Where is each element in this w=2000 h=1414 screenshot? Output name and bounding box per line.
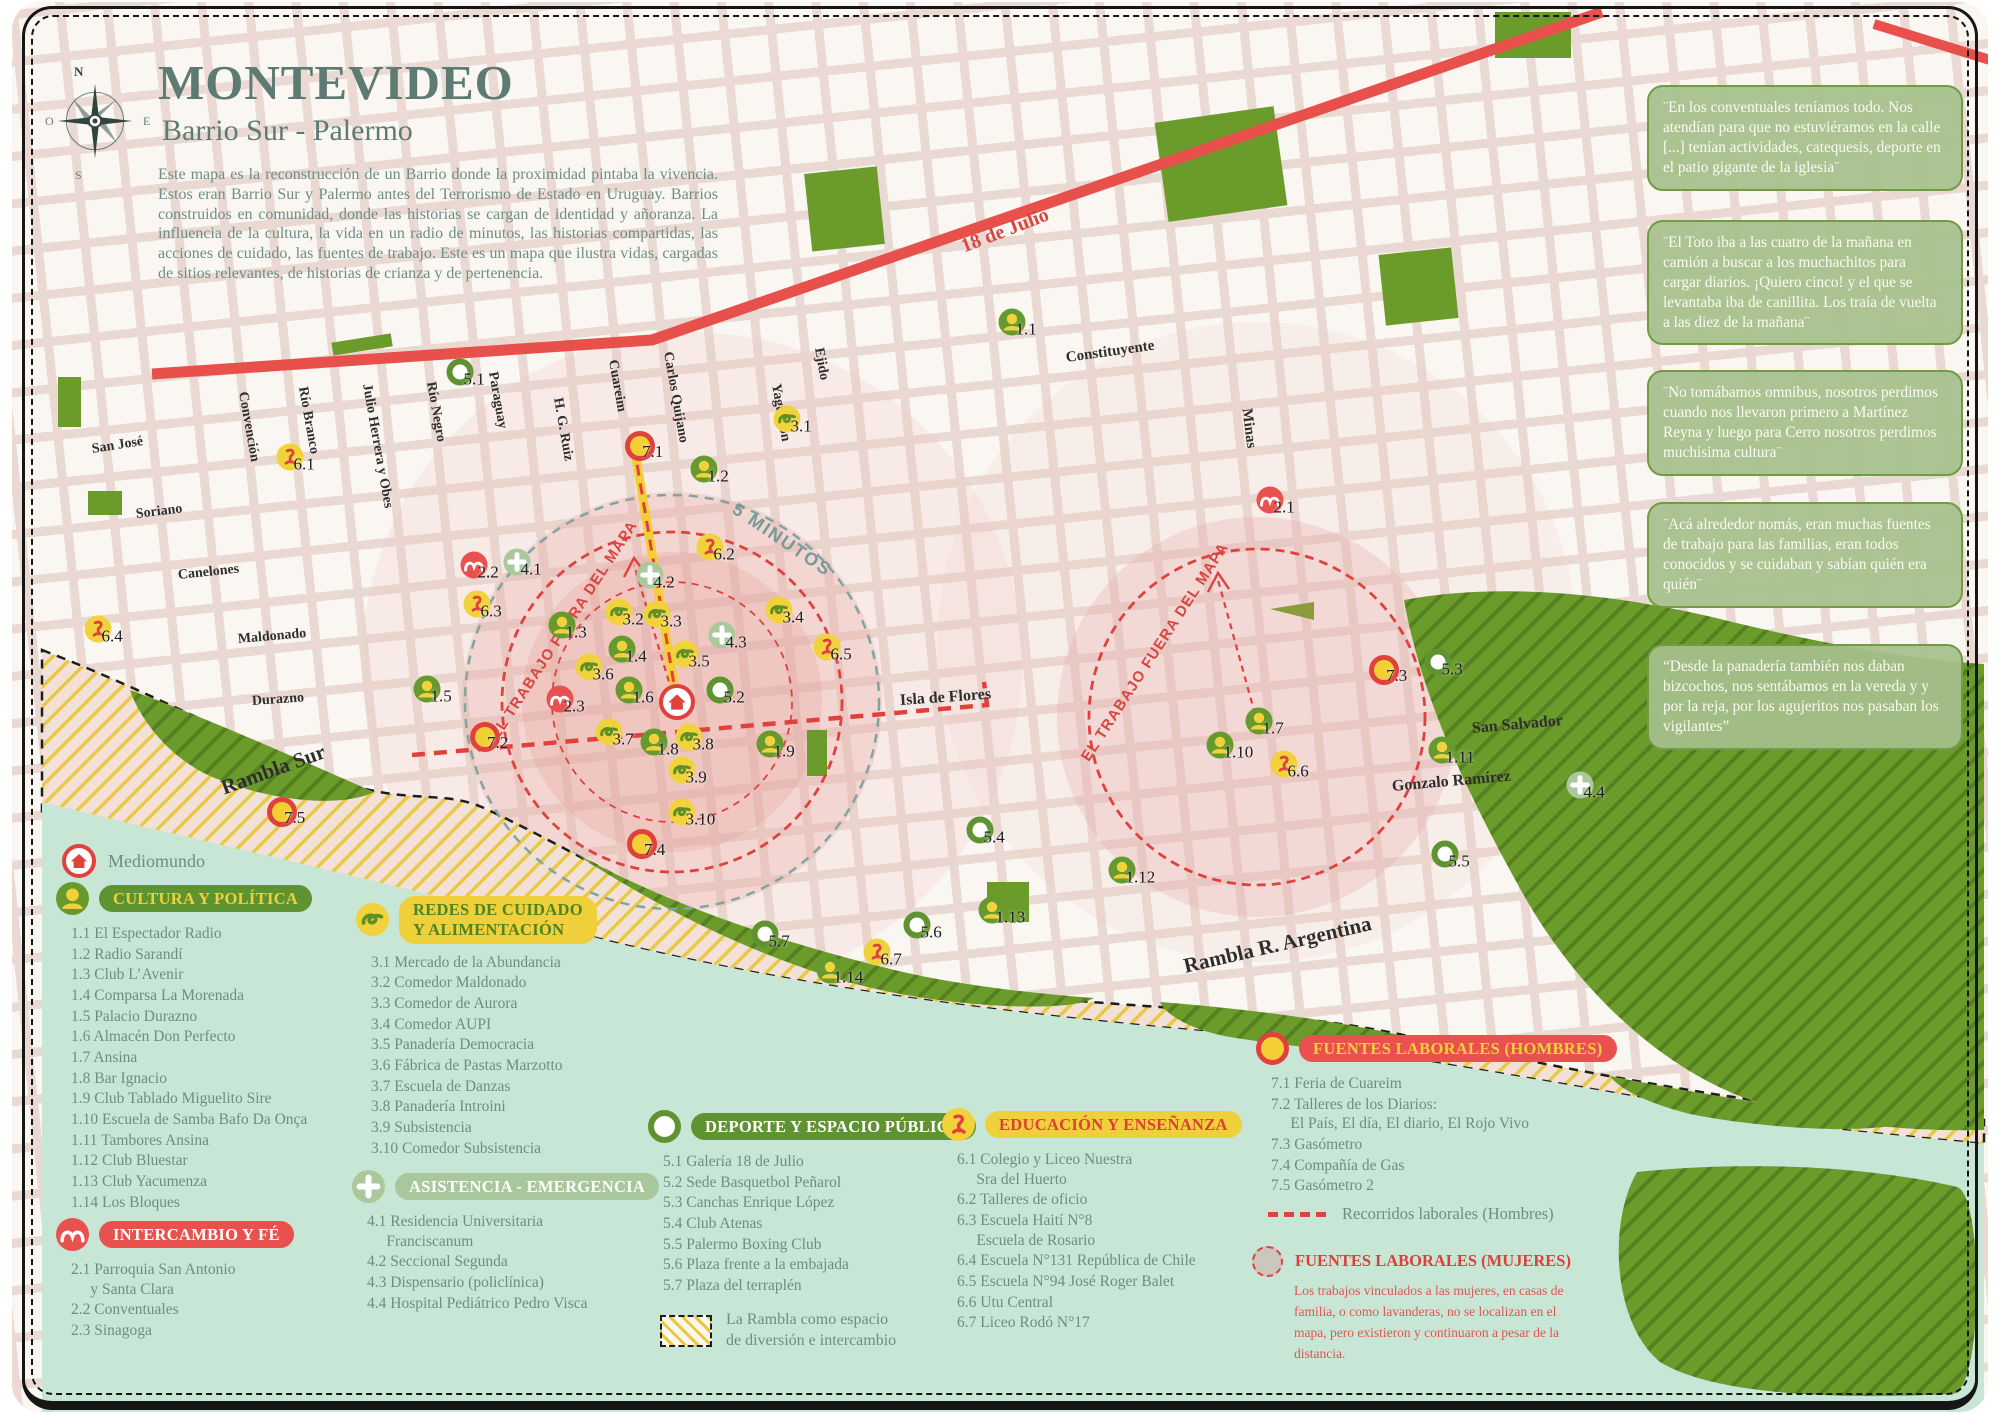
marker-label: 5.3: [1442, 660, 1463, 680]
marker-label: 3.10: [686, 810, 716, 830]
legend-item: 1.11 Tambores Ansina: [71, 1131, 312, 1151]
marker-7.1[interactable]: 7.1: [625, 431, 655, 461]
marker-3.10[interactable]: 3.10: [669, 799, 696, 826]
legend-item: 3.4 Comedor AUPI: [371, 1015, 597, 1035]
marker-7.2[interactable]: 7.2: [470, 722, 500, 752]
hombres-icon: [1256, 1032, 1289, 1065]
marker-label: 3.2: [623, 610, 644, 630]
legend-item: 4.4 Hospital Pediátrico Pedro Visca: [367, 1294, 659, 1314]
legend-item: 6.7 Liceo Rodó N°17: [957, 1313, 1242, 1333]
marker-label: 1.4: [626, 647, 647, 667]
marker-5.5[interactable]: 5.5: [1432, 841, 1459, 868]
red-dashed-line-swatch: [1268, 1212, 1326, 1217]
legend-badge-hombres: FUENTES LABORALES (HOMBRES): [1299, 1035, 1617, 1063]
compass-rose-icon: [52, 78, 138, 164]
marker-label: 1.13: [996, 908, 1026, 928]
marker-label: 4.2: [654, 573, 675, 593]
marker-6.7[interactable]: 6.7: [864, 939, 891, 966]
legend-item: 5.6 Plaza frente a la embajada: [663, 1255, 976, 1275]
legend-item: 6.2 Talleres de oficio: [957, 1190, 1242, 1210]
marker-label: 2.2: [478, 563, 499, 583]
marker-label: 5.2: [724, 688, 745, 708]
marker-7.4[interactable]: 7.4: [627, 829, 657, 859]
legend-item: 7.4 Compañía de Gas: [1271, 1156, 1617, 1176]
legend-item: 3.2 Comedor Maldonado: [371, 973, 597, 993]
asistencia-icon: [352, 1170, 385, 1203]
marker-label: 4.4: [1584, 783, 1605, 803]
legend-item: 5.2 Sede Basquetbol Peñarol: [663, 1173, 976, 1193]
quote-bubble-4: ¨Acá alrededor nomás, eran muchas fuente…: [1647, 502, 1963, 608]
compass-o: O: [45, 114, 54, 129]
marker-5.2[interactable]: 5.2: [707, 677, 734, 704]
marker-3.7[interactable]: 3.7: [596, 719, 623, 746]
mujeres-circle-icon: [1252, 1246, 1283, 1277]
legend-item: 1.7 Ansina: [71, 1048, 312, 1068]
marker-label: 1.11: [1446, 748, 1475, 768]
legend-badge-cultura: CULTURA Y POLÍTICA: [99, 885, 312, 913]
marker-1.2[interactable]: 1.2: [691, 456, 718, 483]
legend-item: 6.5 Escuela N°94 José Roger Balet: [957, 1272, 1242, 1292]
legend-item: 4.2 Seccional Segunda: [367, 1252, 659, 1272]
marker-label: 4.1: [521, 560, 542, 580]
page-subtitle: Barrio Sur - Palermo: [162, 114, 413, 148]
legend-item: 7.1 Feria de Cuareim: [1271, 1074, 1617, 1094]
legend-item: 6.4 Escuela N°131 República de Chile: [957, 1251, 1242, 1271]
legend-item: 1.8 Bar Ignacio: [71, 1069, 312, 1089]
marker-label: 5.6: [921, 923, 942, 943]
marker-1.4[interactable]: 1.4: [609, 636, 636, 663]
marker-7.3[interactable]: 7.3: [1369, 655, 1399, 685]
marker-1.14[interactable]: 1.14: [817, 957, 844, 984]
redes-icon: [356, 903, 389, 936]
legend-item: 6.3 Escuela Haití N°8 Escuela de Rosario: [957, 1211, 1242, 1250]
legend-item: 1.10 Escuela de Samba Bafo Da Onça: [71, 1110, 312, 1130]
legend-item: 3.9 Subsistencia: [371, 1118, 597, 1138]
legend-item: 1.13 Club Yacumenza: [71, 1172, 312, 1192]
marker-label: 5.5: [1449, 852, 1470, 872]
cultura-icon: [56, 882, 89, 915]
legend-item: 5.3 Canchas Enrique López: [663, 1193, 976, 1213]
legend-item: 5.4 Club Atenas: [663, 1214, 976, 1234]
marker-label: 3.4: [783, 608, 804, 628]
marker-label: 1.2: [708, 467, 729, 487]
mujeres-title: FUENTES LABORALES (MUJERES): [1295, 1246, 1571, 1271]
educacion-icon: [942, 1108, 975, 1141]
marker-label: 1.9: [774, 742, 795, 762]
marker-1.3[interactable]: 1.3: [549, 612, 576, 639]
marker-label: 3.7: [613, 730, 634, 750]
quote-bubble-5: “Desde la panadería también nos daban bi…: [1647, 644, 1963, 750]
mediomundo-label: Mediomundo: [108, 851, 205, 872]
marker-label: 1.6: [633, 688, 654, 708]
marker-1.1[interactable]: 1.1: [999, 309, 1026, 336]
compass-n: N: [74, 64, 83, 80]
marker-1.6[interactable]: 1.6: [616, 677, 643, 704]
legend-section-hombres: FUENTES LABORALES (HOMBRES)7.1 Feria de …: [1256, 1032, 1617, 1197]
marker-label: 6.1: [294, 455, 315, 475]
marker-label: 1.12: [1126, 868, 1156, 888]
legend-item: 3.6 Fábrica de Pastas Marzotto: [371, 1056, 597, 1076]
marker-7.5[interactable]: 7.5: [267, 797, 297, 827]
mujeres-text: Los trabajos vinculados a las mujeres, e…: [1294, 1281, 1584, 1365]
marker-label: 7.5: [284, 808, 305, 828]
legend-item: 1.12 Club Bluestar: [71, 1151, 312, 1171]
marker-label: 6.2: [714, 545, 735, 565]
marker-label: 1.7: [1263, 719, 1284, 739]
legend-mediomundo: Mediomundo: [62, 844, 205, 878]
marker-label: 5.1: [464, 370, 485, 390]
marker-2.1[interactable]: 2.1: [1257, 487, 1284, 514]
marker-label: 6.4: [102, 627, 123, 647]
marker-6.3[interactable]: 6.3: [464, 591, 491, 618]
marker-3.8[interactable]: 3.8: [676, 724, 703, 751]
legend-item: 2.1 Parroquia San Antonio y Santa Clara: [71, 1260, 294, 1299]
marker-1.7[interactable]: 1.7: [1246, 708, 1273, 735]
legend-section-intercambio: INTERCAMBIO Y FÉ2.1 Parroquia San Antoni…: [56, 1218, 294, 1342]
marker-1.10[interactable]: 1.10: [1207, 732, 1234, 759]
recorridos-label: Recorridos laborales (Hombres): [1342, 1204, 1554, 1224]
mediomundo-house-icon: [62, 844, 96, 878]
legend-section-asistencia: ASISTENCIA - EMERGENCIA4.1 Residencia Un…: [352, 1170, 659, 1314]
marker-label: 3.6: [593, 665, 614, 685]
legend-item: 5.7 Plaza del terraplén: [663, 1276, 976, 1296]
legend-item: 1.3 Club L’Avenir: [71, 965, 312, 985]
marker-4.3[interactable]: 4.3: [709, 622, 736, 649]
marker-label: 2.3: [564, 697, 585, 717]
corner-island: [1619, 1166, 1977, 1396]
legend-section-educacion: EDUCACIÓN Y ENSEÑANZA6.1 Colegio y Liceo…: [942, 1108, 1242, 1334]
legend-item: 3.8 Panadería Introini: [371, 1097, 597, 1117]
marker-1.13[interactable]: 1.13: [979, 897, 1006, 924]
marker-5.3[interactable]: 5.3: [1425, 649, 1452, 676]
marker-label: 6.7: [881, 950, 902, 970]
legend-item: 7.5 Gasómetro 2: [1271, 1176, 1617, 1196]
legend-item: 1.1 El Espectador Radio: [71, 924, 312, 944]
legend-badge-redes: REDES DE CUIDADO Y ALIMENTACIÓN: [399, 896, 597, 944]
compass-e: E: [143, 114, 150, 129]
legend-rambla-note: La Rambla como espacio de diversión e in…: [660, 1310, 896, 1352]
marker-1.11[interactable]: 1.11: [1429, 737, 1456, 764]
legend-item: 1.2 Radio Sarandí: [71, 945, 312, 965]
marker-label: 6.3: [481, 602, 502, 622]
compass-s: S: [75, 168, 82, 183]
marker-label: 4.3: [726, 633, 747, 653]
legend-item: 3.5 Panadería Democracia: [371, 1035, 597, 1055]
quote-bubble-1: ¨En los conventuales teníamos todo. Nos …: [1647, 85, 1963, 191]
legend-item: 1.5 Palacio Durazno: [71, 1007, 312, 1027]
legend-item: 5.5 Palermo Boxing Club: [663, 1235, 976, 1255]
marker-1.9[interactable]: 1.9: [757, 731, 784, 758]
quote-bubble-2: ¨El Toto iba a las cuatro de la mañana e…: [1647, 220, 1963, 345]
legend-item: 6.6 Utu Central: [957, 1293, 1242, 1313]
marker-2.3[interactable]: 2.3: [547, 686, 574, 713]
legend-item: 1.4 Comparsa La Morenada: [71, 986, 312, 1006]
marker-label: 1.1: [1016, 320, 1037, 340]
legend-item: 4.1 Residencia Universitaria Franciscanu…: [367, 1212, 659, 1251]
page-title: MONTEVIDEO: [158, 54, 514, 111]
rambla-hatch-swatch: [660, 1315, 712, 1347]
legend-item: 1.6 Almacén Don Perfecto: [71, 1027, 312, 1047]
road-corner: [1874, 24, 1988, 60]
legend-mujeres: FUENTES LABORALES (MUJERES) Los trabajos…: [1252, 1246, 1602, 1365]
marker-3.6[interactable]: 3.6: [576, 654, 603, 681]
marker-2.2[interactable]: 2.2: [461, 552, 488, 579]
legend-badge-intercambio: INTERCAMBIO Y FÉ: [99, 1221, 294, 1249]
mediomundo-icon: [659, 684, 695, 720]
marker-label: 1.3: [566, 623, 587, 643]
marker-mediomundo[interactable]: [659, 684, 695, 720]
marker-label: 7.4: [644, 840, 665, 860]
legend-item: 3.1 Mercado de la Abundancia: [371, 953, 597, 973]
marker-4.2[interactable]: 4.2: [637, 562, 664, 589]
legend-section-deporte: DEPORTE Y ESPACIO PÚBLICO5.1 Galería 18 …: [648, 1110, 976, 1297]
marker-3.5[interactable]: 3.5: [672, 641, 699, 668]
legend-item: 2.3 Sinagoga: [71, 1321, 294, 1341]
marker-1.12[interactable]: 1.12: [1109, 857, 1136, 884]
marker-6.2[interactable]: 6.2: [697, 534, 724, 561]
rambla-note-text: La Rambla como espacio de diversión e in…: [726, 1310, 896, 1352]
marker-label: 5.4: [984, 828, 1005, 848]
marker-label: 7.2: [487, 733, 508, 753]
marker-1.5[interactable]: 1.5: [414, 676, 441, 703]
legend-item: 2.2 Conventuales: [71, 1300, 294, 1320]
marker-label: 3.9: [686, 768, 707, 788]
legend-recorridos: Recorridos laborales (Hombres): [1268, 1204, 1554, 1224]
marker-label: 1.14: [834, 968, 864, 988]
legend-badge-deporte: DEPORTE Y ESPACIO PÚBLICO: [691, 1113, 976, 1141]
marker-5.4[interactable]: 5.4: [967, 817, 994, 844]
marker-label: 3.1: [791, 417, 812, 437]
marker-label: 3.3: [661, 612, 682, 632]
marker-6.5[interactable]: 6.5: [814, 634, 841, 661]
marker-3.2[interactable]: 3.2: [606, 599, 633, 626]
marker-1.8[interactable]: 1.8: [641, 729, 668, 756]
marker-label: 7.3: [1386, 666, 1407, 686]
marker-4.1[interactable]: 4.1: [504, 549, 531, 576]
intercambio-icon: [56, 1218, 89, 1251]
marker-4.4[interactable]: 4.4: [1567, 772, 1594, 799]
marker-3.4[interactable]: 3.4: [766, 597, 793, 624]
marker-label: 1.5: [431, 687, 452, 707]
marker-3.9[interactable]: 3.9: [669, 757, 696, 784]
legend-section-redes: REDES DE CUIDADO Y ALIMENTACIÓN3.1 Merca…: [356, 896, 597, 1159]
marker-label: 2.1: [1274, 498, 1295, 518]
marker-5.6[interactable]: 5.6: [904, 912, 931, 939]
legend-item: 3.10 Comedor Subsistencia: [371, 1139, 597, 1159]
legend-item: 7.3 Gasómetro: [1271, 1135, 1617, 1155]
quote-bubble-3: ¨No tomábamos omnibus, nosotros perdimos…: [1647, 370, 1963, 476]
deporte-icon: [648, 1110, 681, 1143]
marker-label: 5.7: [769, 932, 790, 952]
legend-item: 6.1 Colegio y Liceo Nuestra Sra del Huer…: [957, 1150, 1242, 1189]
legend-item: 4.3 Dispensario (policlínica): [367, 1273, 659, 1293]
marker-label: 1.10: [1224, 743, 1254, 763]
marker-label: 6.6: [1288, 762, 1309, 782]
legend-badge-asistencia: ASISTENCIA - EMERGENCIA: [395, 1173, 659, 1201]
legend-badge-educacion: EDUCACIÓN Y ENSEÑANZA: [985, 1111, 1242, 1139]
marker-label: 7.1: [642, 442, 663, 462]
marker-3.1[interactable]: 3.1: [774, 406, 801, 433]
marker-6.1[interactable]: 6.1: [277, 444, 304, 471]
legend-item: 5.1 Galería 18 de Julio: [663, 1152, 976, 1172]
montevideo-map-page: { "page": { "title": "MONTEVIDEO", "subt…: [0, 0, 2000, 1414]
legend-item: 3.7 Escuela de Danzas: [371, 1077, 597, 1097]
marker-3.3[interactable]: 3.3: [644, 601, 671, 628]
marker-label: 3.8: [693, 735, 714, 755]
marker-6.4[interactable]: 6.4: [85, 616, 112, 643]
legend-item: 1.9 Club Tablado Miguelito Sire: [71, 1089, 312, 1109]
intro-paragraph: Este mapa es la reconstrucción de un Bar…: [158, 165, 718, 284]
marker-5.1[interactable]: 5.1: [447, 359, 474, 386]
map-page-inner: N S E O MONTEVIDEO Barrio Sur - Palermo …: [12, 2, 1988, 1412]
marker-6.6[interactable]: 6.6: [1271, 751, 1298, 778]
marker-label: 3.5: [689, 652, 710, 672]
legend-item: 1.14 Los Bloques: [71, 1193, 312, 1213]
marker-label: 6.5: [831, 645, 852, 665]
legend-item: 3.3 Comedor de Aurora: [371, 994, 597, 1014]
marker-5.7[interactable]: 5.7: [752, 921, 779, 948]
legend-item: 7.2 Talleres de los Diarios: El País, El…: [1271, 1095, 1617, 1134]
legend-section-cultura: CULTURA Y POLÍTICA1.1 El Espectador Radi…: [56, 882, 312, 1213]
mediomundo-icon: [62, 844, 96, 878]
